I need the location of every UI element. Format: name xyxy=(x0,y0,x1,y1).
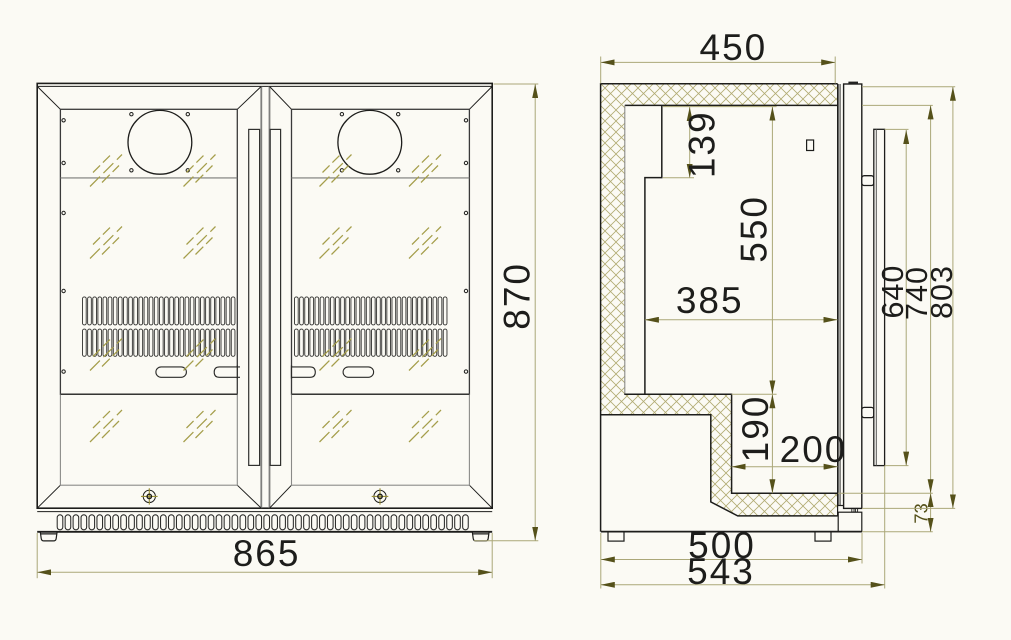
svg-text:543: 543 xyxy=(687,551,755,592)
svg-text:870: 870 xyxy=(497,262,538,330)
svg-text:385: 385 xyxy=(676,280,744,321)
svg-text:139: 139 xyxy=(681,110,722,178)
svg-text:450: 450 xyxy=(700,27,768,68)
svg-text:865: 865 xyxy=(233,533,301,574)
svg-text:73: 73 xyxy=(911,503,932,524)
svg-text:550: 550 xyxy=(734,195,775,263)
svg-text:190: 190 xyxy=(735,395,776,463)
svg-text:200: 200 xyxy=(780,429,848,470)
svg-text:803: 803 xyxy=(925,265,959,319)
